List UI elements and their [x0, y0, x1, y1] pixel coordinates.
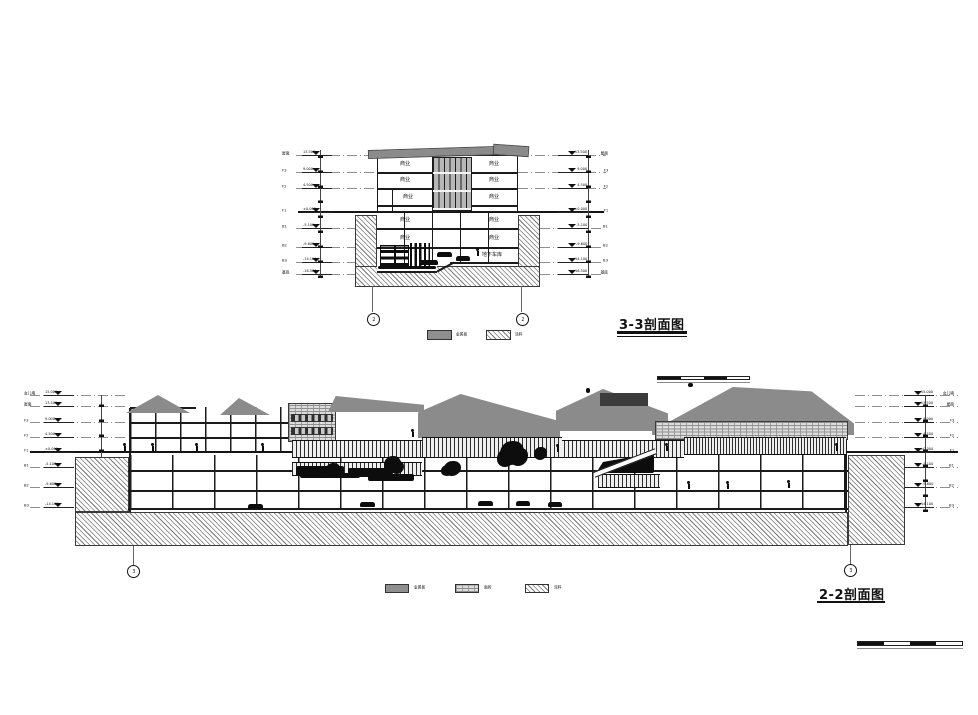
grid-bubble: 3 — [844, 564, 857, 577]
person-silhouette — [557, 447, 559, 452]
legend-swatch-metal-panel — [427, 330, 452, 340]
person-silhouette — [836, 446, 838, 451]
elevation-tick — [558, 262, 588, 263]
dimension-string — [586, 150, 591, 278]
room-label: 商业 — [400, 161, 410, 166]
car-silhouette — [248, 504, 263, 509]
elevation-tick — [904, 437, 934, 438]
upper-columns — [130, 407, 302, 452]
grid-leader-line — [850, 545, 851, 564]
graphic-scale-bar — [657, 376, 750, 380]
legend-label: 金属板 — [456, 333, 467, 337]
elevation-tick — [44, 452, 74, 453]
column — [392, 188, 393, 212]
car-stacker — [380, 245, 395, 266]
legend-swatch-metal-panel — [385, 584, 409, 593]
car-silhouette — [437, 252, 452, 257]
elevation-tick — [904, 507, 934, 508]
elevation-tick — [904, 452, 934, 453]
person-silhouette — [124, 446, 126, 451]
retaining-wall-hatch — [355, 215, 377, 268]
grid-bubble: 3 — [127, 565, 140, 578]
elevation-tick — [904, 422, 934, 423]
person-silhouette — [788, 483, 790, 488]
foundation-mat-hatch — [75, 512, 848, 546]
person-silhouette — [152, 446, 154, 451]
grid-leader-line — [372, 286, 373, 312]
legend-label: 面砖 — [484, 586, 491, 590]
elevation-tick — [44, 467, 74, 468]
elevation-tick — [44, 507, 74, 508]
car-silhouette — [548, 502, 562, 507]
room-label: 商业 — [489, 235, 499, 240]
person-silhouette — [727, 484, 729, 489]
room-label: 商业 — [403, 194, 413, 199]
legend-swatch-face-brick — [455, 584, 479, 593]
grid-leader-line — [521, 286, 522, 312]
elevation-tick — [302, 188, 332, 189]
car-stacker — [395, 245, 409, 266]
room-label: 商业 — [489, 161, 499, 166]
grid-leader-line — [133, 546, 134, 565]
elevation-tick — [44, 437, 74, 438]
elevation-tick — [558, 247, 588, 248]
rooftop-element — [586, 388, 590, 393]
person-silhouette — [688, 484, 690, 489]
room-label: 商业 — [489, 177, 499, 182]
floor-slab — [377, 228, 518, 230]
car-silhouette — [420, 260, 438, 265]
person-silhouette — [477, 251, 479, 256]
column — [432, 212, 433, 264]
legend-swatch-paint-hatch — [486, 330, 511, 340]
car-silhouette — [478, 501, 493, 506]
room-label: 商业 — [400, 217, 410, 222]
rooftop-element — [688, 383, 693, 387]
equipment-base — [378, 266, 436, 269]
pyramid-roof — [126, 395, 190, 413]
person-silhouette — [196, 446, 198, 451]
legend-label: 涂料 — [515, 333, 522, 337]
garage-label: 地下车库 — [482, 252, 502, 257]
title-underline — [817, 601, 885, 603]
elevation-tick — [44, 422, 74, 423]
retaining-wall-hatch — [518, 215, 540, 268]
room-label: 商业 — [400, 235, 410, 240]
elevation-tick — [904, 406, 934, 407]
grid-bubble: 2 — [367, 313, 380, 326]
elevation-tick — [302, 155, 332, 156]
elevation-tick — [904, 487, 934, 488]
grid-bubble: 2 — [516, 313, 529, 326]
room-label: 商业 — [489, 217, 499, 222]
elevation-tick — [904, 395, 934, 396]
elevation-tick — [558, 212, 588, 213]
room-label: 商业 — [489, 194, 499, 199]
retaining-wall-hatch — [75, 457, 129, 512]
elevation-tick — [558, 228, 588, 229]
elevation-tick — [302, 247, 332, 248]
colonnade-band — [684, 437, 846, 455]
elevation-tick — [558, 274, 588, 275]
drawing-sheet: 屋面13.500 F39.000 F24.500 F1±0.000 B1-5.1… — [0, 0, 978, 715]
flat-roof-block — [600, 393, 648, 406]
legend-swatch-paint-hatch — [525, 584, 549, 593]
elevation-tick — [558, 155, 588, 156]
dimension-string — [318, 150, 323, 278]
title-underline — [617, 331, 687, 334]
basement-glazing-band — [598, 474, 660, 488]
retaining-wall-hatch — [848, 455, 905, 545]
planter-silhouette — [368, 474, 414, 481]
elevation-tick — [44, 406, 74, 407]
grid-bubble-label: 2 — [372, 317, 375, 322]
dimension-string — [923, 395, 928, 512]
car-silhouette — [516, 501, 530, 506]
person-silhouette — [412, 432, 414, 437]
car-silhouette — [360, 502, 375, 507]
window-row — [291, 414, 333, 422]
roof-plane — [418, 394, 560, 438]
scale-bar-baseline — [857, 648, 963, 649]
elevation-tick — [44, 395, 74, 396]
person-silhouette — [666, 446, 668, 451]
atrium-curtain-wall — [432, 157, 472, 211]
legend-label: 金属板 — [414, 586, 425, 590]
grid-bubble-label: 3 — [132, 569, 135, 574]
elevation-tick — [302, 262, 332, 263]
legend-label: 涂料 — [554, 586, 561, 590]
elevation-tick — [302, 228, 332, 229]
elevation-tick — [44, 487, 74, 488]
window-row — [291, 427, 333, 435]
car-silhouette — [456, 256, 470, 261]
pit-floor-slab — [377, 271, 437, 273]
title-underline — [617, 336, 687, 337]
room-label: 商业 — [400, 177, 410, 182]
elevation-tick — [302, 274, 332, 275]
elevation-tick — [302, 212, 332, 213]
elevation-tick — [558, 188, 588, 189]
person-silhouette — [262, 446, 264, 451]
brick-gable-wall — [288, 403, 336, 442]
elevation-tick — [302, 172, 332, 173]
scale-bar-baseline — [657, 382, 750, 383]
elevation-tick — [558, 172, 588, 173]
roof-plane — [328, 396, 424, 412]
graphic-scale-bar — [857, 641, 963, 646]
elevation-tick — [904, 467, 934, 468]
level-label: 屋面 — [282, 152, 289, 156]
